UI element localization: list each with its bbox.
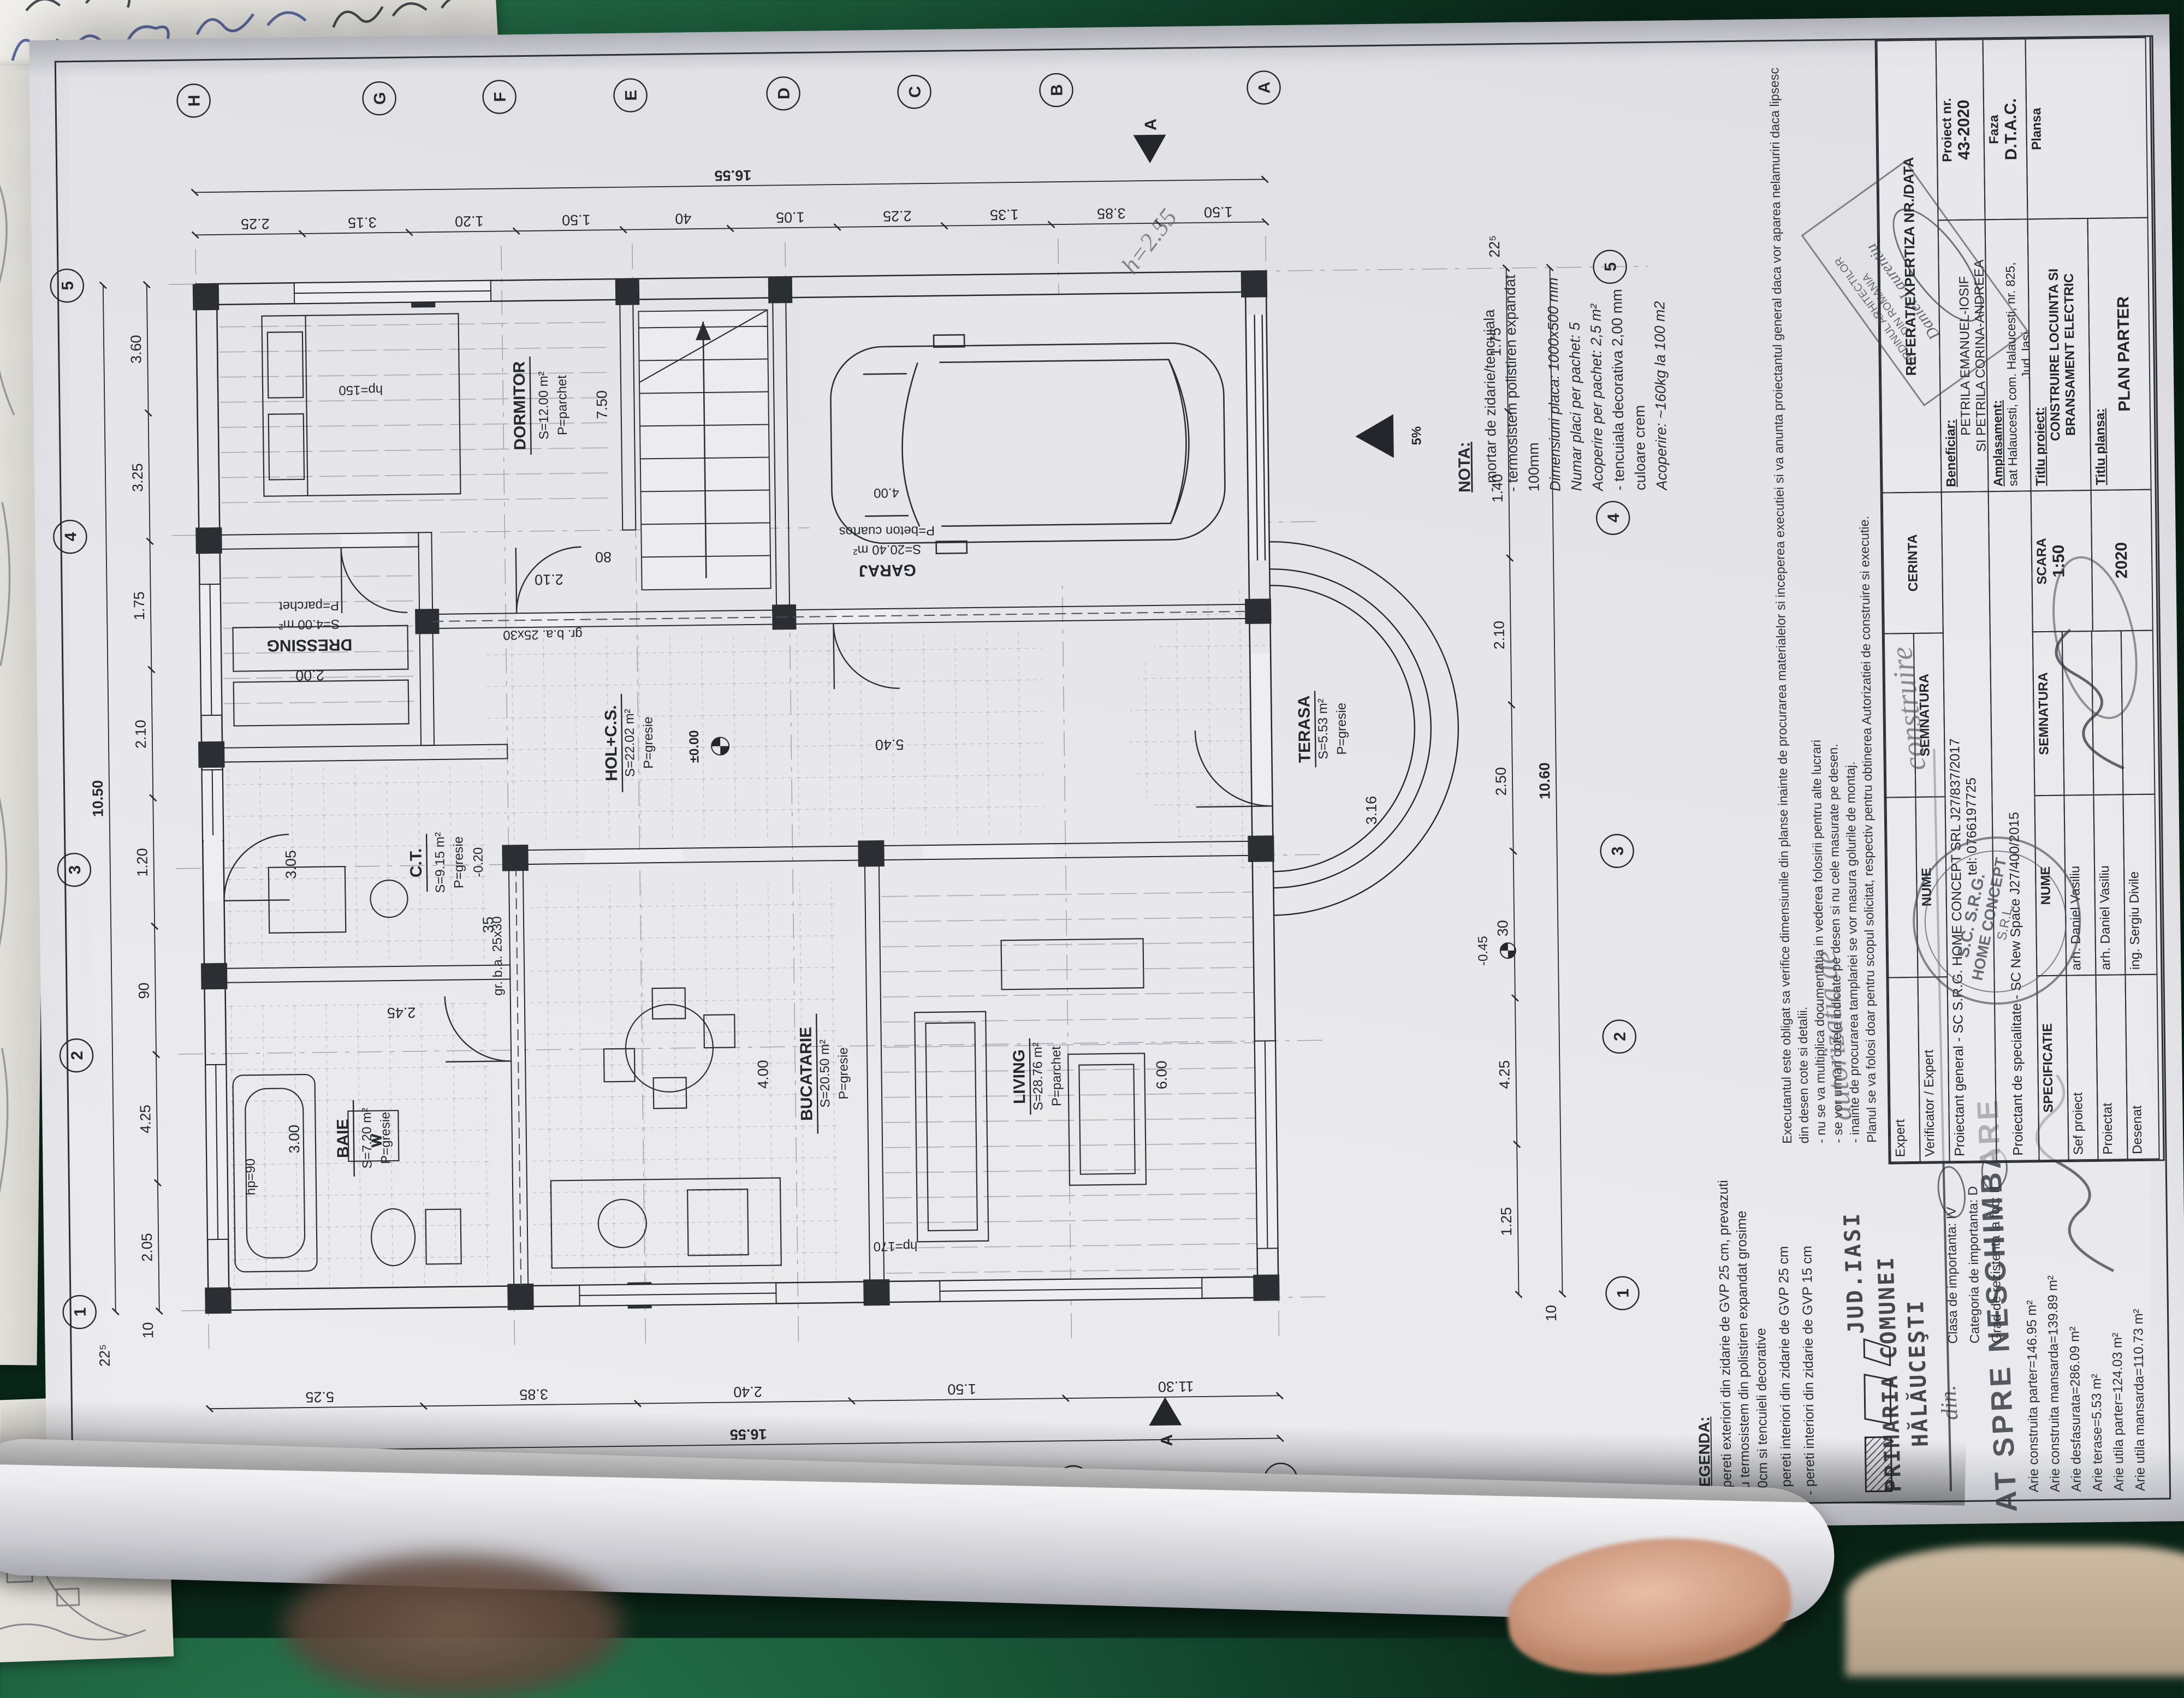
stamp-jud-iasi: JUD.IASI bbox=[1839, 1211, 1870, 1334]
room-terasa: TERASA S=5.53 m² P=gresie bbox=[1295, 691, 1350, 768]
cartus-signatures bbox=[2022, 473, 2168, 802]
svg-text:3.00: 3.00 bbox=[286, 1125, 303, 1154]
svg-text:1.50: 1.50 bbox=[562, 212, 591, 229]
svg-text:P=gresie: P=gresie bbox=[1334, 703, 1349, 755]
svg-text:S=20.50 m²: S=20.50 m² bbox=[817, 1040, 833, 1108]
svg-text:BUCATARIE: BUCATARIE bbox=[797, 1026, 816, 1121]
svg-text:6.00: 6.00 bbox=[1153, 1060, 1170, 1089]
knee-bottom-right bbox=[1845, 1545, 2184, 1676]
cell-specificatie-h: SPECIFICATIE bbox=[2036, 975, 2069, 1161]
nota-block: NOTA: - mortar de zidarie/tencuiala - te… bbox=[1450, 140, 1673, 492]
svg-text:2.10: 2.10 bbox=[1491, 621, 1508, 650]
svg-text:1.50: 1.50 bbox=[947, 1381, 976, 1398]
cell-desenat-nume: ing. Sergiu Divile bbox=[2122, 794, 2157, 976]
svg-text:3.25: 3.25 bbox=[129, 463, 146, 492]
svg-text:2.25: 2.25 bbox=[883, 207, 912, 224]
svg-text:P=gresie: P=gresie bbox=[836, 1047, 851, 1100]
cell-verificator: Verificator / Expert bbox=[1917, 976, 1950, 1162]
room-dressing: DRESSING S=4.00 m² P=parchet bbox=[266, 598, 352, 655]
svg-text:2.40: 2.40 bbox=[733, 1384, 762, 1400]
svg-text:4.25: 4.25 bbox=[1496, 1060, 1513, 1089]
svg-text:1.05: 1.05 bbox=[776, 209, 805, 226]
svg-text:40: 40 bbox=[675, 210, 691, 227]
svg-text:G: G bbox=[371, 92, 389, 105]
plansa-label: Plansa bbox=[2028, 44, 2046, 214]
svg-text:H: H bbox=[186, 94, 204, 106]
svg-text:DORMITOR: DORMITOR bbox=[511, 361, 530, 450]
svg-text:2: 2 bbox=[68, 1051, 86, 1060]
svg-text:4: 4 bbox=[62, 532, 80, 541]
svg-text:1.20: 1.20 bbox=[455, 213, 484, 230]
window-label-hp150: hp=150 bbox=[339, 382, 383, 397]
cell-proiectat-nume: arh. Daniel Vasiliu bbox=[2093, 794, 2126, 976]
svg-text:3.85: 3.85 bbox=[1097, 205, 1126, 222]
nota-line: Acoperire: ~160kg la 100 m2 bbox=[1647, 140, 1673, 490]
svg-text:BAIE: BAIE bbox=[334, 1119, 352, 1158]
svg-text:C: C bbox=[906, 86, 924, 98]
svg-text:2.05: 2.05 bbox=[139, 1233, 156, 1262]
svg-text:2.45: 2.45 bbox=[387, 1005, 416, 1022]
room-living: LIVING S=28.76 m² P=parchet bbox=[1010, 1038, 1065, 1115]
level-ext: -0.45 bbox=[1476, 936, 1491, 966]
svg-text:S=12.00 m²: S=12.00 m² bbox=[536, 371, 552, 440]
level-ct: -0.20 bbox=[471, 847, 486, 877]
svg-text:1.25: 1.25 bbox=[1498, 1207, 1515, 1236]
svg-text:1.35: 1.35 bbox=[990, 206, 1019, 223]
svg-text:2.10: 2.10 bbox=[535, 571, 563, 588]
svg-text:2.50: 2.50 bbox=[1493, 767, 1510, 796]
svg-text:30: 30 bbox=[1494, 920, 1511, 936]
svg-text:5.25: 5.25 bbox=[305, 1388, 334, 1405]
svg-text:3.60: 3.60 bbox=[128, 335, 145, 364]
cell-proiectat: Proiectat bbox=[2095, 974, 2128, 1160]
finger-left bbox=[284, 1556, 622, 1698]
svg-text:LIVING: LIVING bbox=[1010, 1049, 1029, 1104]
svg-text:2.10: 2.10 bbox=[133, 720, 150, 749]
svg-text:10: 10 bbox=[140, 1322, 156, 1338]
cell-desenat: Desenat bbox=[2124, 974, 2159, 1160]
svg-text:S=5.53 m²: S=5.53 m² bbox=[1315, 698, 1331, 759]
cell-plansa: Plansa bbox=[2025, 37, 2149, 220]
slope-marker: 5% bbox=[1355, 414, 1425, 459]
faza-label: Faza bbox=[1986, 44, 2003, 215]
beam-label-2: gr. b.a. 25x30 bbox=[503, 627, 583, 643]
svg-text:3: 3 bbox=[1609, 846, 1627, 856]
svg-text:HOL+C.S.: HOL+C.S. bbox=[602, 705, 621, 781]
svg-text:GARAJ: GARAJ bbox=[859, 561, 916, 579]
svg-text:A: A bbox=[1255, 81, 1273, 93]
svg-text:3.16: 3.16 bbox=[1363, 796, 1380, 825]
photo-of-floor-plan: { "colors":{"felt_green":"#1c5f3d","pape… bbox=[0, 0, 2184, 1638]
svg-text:7.50: 7.50 bbox=[594, 390, 610, 419]
svg-text:10.50: 10.50 bbox=[90, 780, 106, 817]
svg-text:C.T.: C.T. bbox=[407, 848, 425, 878]
svg-text:35: 35 bbox=[480, 917, 496, 933]
svg-text:4.00: 4.00 bbox=[755, 1060, 771, 1089]
svg-text:S=22.02 m²: S=22.02 m² bbox=[622, 709, 638, 777]
svg-text:4.25: 4.25 bbox=[137, 1105, 154, 1133]
svg-text:P=parchet: P=parchet bbox=[278, 598, 339, 613]
svg-text:1.20: 1.20 bbox=[134, 848, 151, 877]
faza-value: D.T.A.C. bbox=[2001, 44, 2022, 215]
cell-expert-nume bbox=[1885, 797, 1918, 978]
svg-text:2.00: 2.00 bbox=[295, 667, 324, 684]
svg-text:5%: 5% bbox=[1409, 426, 1424, 446]
cell-cerinta: CERINTA bbox=[1882, 491, 1944, 634]
cell-faza: Faza D.T.A.C. bbox=[1983, 38, 2028, 220]
svg-text:1: 1 bbox=[72, 1308, 90, 1317]
svg-text:P=parchet: P=parchet bbox=[555, 375, 570, 436]
svg-text:S=9.15 m²: S=9.15 m² bbox=[432, 832, 448, 893]
plan-sheet: hp=90 hp=150 hp=170 bbox=[29, 14, 2184, 1547]
svg-text:4: 4 bbox=[1605, 513, 1623, 523]
cell-proiect-nr: Proiect nr. 43-2020 bbox=[1936, 39, 1986, 221]
svg-text:3.05: 3.05 bbox=[282, 850, 299, 879]
svg-text:3.15: 3.15 bbox=[348, 214, 377, 231]
svg-text:P=gresie: P=gresie bbox=[451, 836, 466, 889]
cell-expert: Expert bbox=[1888, 977, 1920, 1163]
cell-titlu-plansa: Titlu plansa: PLAN PARTER bbox=[2087, 217, 2152, 491]
svg-text:22⁵: 22⁵ bbox=[96, 1344, 113, 1367]
cell-titlu-proiect: Titlu proiect: CONSTRUIRE LOCUINTA SI BR… bbox=[2027, 218, 2092, 491]
proiect-nr-value: 43-2020 bbox=[1954, 45, 1975, 215]
amplasament-label: Amplasament: bbox=[1990, 400, 2005, 486]
proiect-nr-label: Proiect nr. bbox=[1939, 45, 1956, 215]
svg-text:S=20.40 m²: S=20.40 m² bbox=[853, 542, 921, 557]
svg-text:11.30: 11.30 bbox=[1158, 1378, 1194, 1395]
svg-text:10.60: 10.60 bbox=[1536, 762, 1553, 799]
cell-sef-proiect: Sef proiect bbox=[2066, 975, 2098, 1161]
svg-text:S=28.76 m²: S=28.76 m² bbox=[1030, 1042, 1046, 1111]
svg-text:S=7.20 m²: S=7.20 m² bbox=[359, 1108, 375, 1169]
svg-text:1.75: 1.75 bbox=[131, 591, 148, 620]
titlu-plansa-value: PLAN PARTER bbox=[2114, 223, 2135, 485]
svg-text:2: 2 bbox=[1611, 1032, 1629, 1041]
level-zero: ±0.00 bbox=[687, 730, 702, 763]
svg-text:3.85: 3.85 bbox=[519, 1386, 548, 1403]
svg-text:5.40: 5.40 bbox=[875, 737, 904, 753]
svg-text:10: 10 bbox=[1543, 1305, 1559, 1321]
svg-text:5: 5 bbox=[59, 281, 77, 290]
svg-text:A: A bbox=[1142, 118, 1160, 130]
garage-axis-dim: 4.00 bbox=[874, 485, 899, 501]
svg-text:P=beton cuartos: P=beton cuartos bbox=[839, 523, 935, 539]
svg-text:2.25: 2.25 bbox=[241, 216, 270, 233]
titlu-proiect-value: CONSTRUIRE LOCUINTA SI BRANSAMENT ELECTR… bbox=[2046, 223, 2080, 486]
svg-text:E: E bbox=[622, 90, 640, 100]
svg-text:S=4.00 m²: S=4.00 m² bbox=[279, 616, 340, 632]
nota-title: NOTA: bbox=[1450, 143, 1476, 492]
window-label-hp170: hp=170 bbox=[873, 1238, 917, 1254]
svg-text:P=gresie: P=gresie bbox=[641, 716, 656, 769]
axis-letters-right: H G F E D C B A bbox=[177, 71, 1280, 117]
svg-text:P=gresie: P=gresie bbox=[378, 1112, 393, 1164]
svg-text:1: 1 bbox=[1614, 1289, 1632, 1298]
svg-text:B: B bbox=[1048, 84, 1066, 96]
svg-text:P=parchet: P=parchet bbox=[1049, 1046, 1064, 1107]
beneficiar-label: Beneficiar: bbox=[1943, 419, 1959, 487]
svg-text:TERASA: TERASA bbox=[1295, 696, 1314, 763]
svg-text:3: 3 bbox=[66, 865, 84, 875]
svg-text:80: 80 bbox=[595, 549, 612, 565]
svg-text:F: F bbox=[491, 92, 509, 102]
svg-text:90: 90 bbox=[135, 982, 152, 999]
svg-text:DRESSING: DRESSING bbox=[266, 636, 352, 655]
staircase bbox=[638, 310, 770, 590]
svg-text:D: D bbox=[775, 87, 793, 99]
svg-text:1.50: 1.50 bbox=[1204, 204, 1233, 221]
stamp-inner-ring bbox=[1912, 838, 2079, 1005]
svg-text:16.55: 16.55 bbox=[714, 167, 751, 184]
